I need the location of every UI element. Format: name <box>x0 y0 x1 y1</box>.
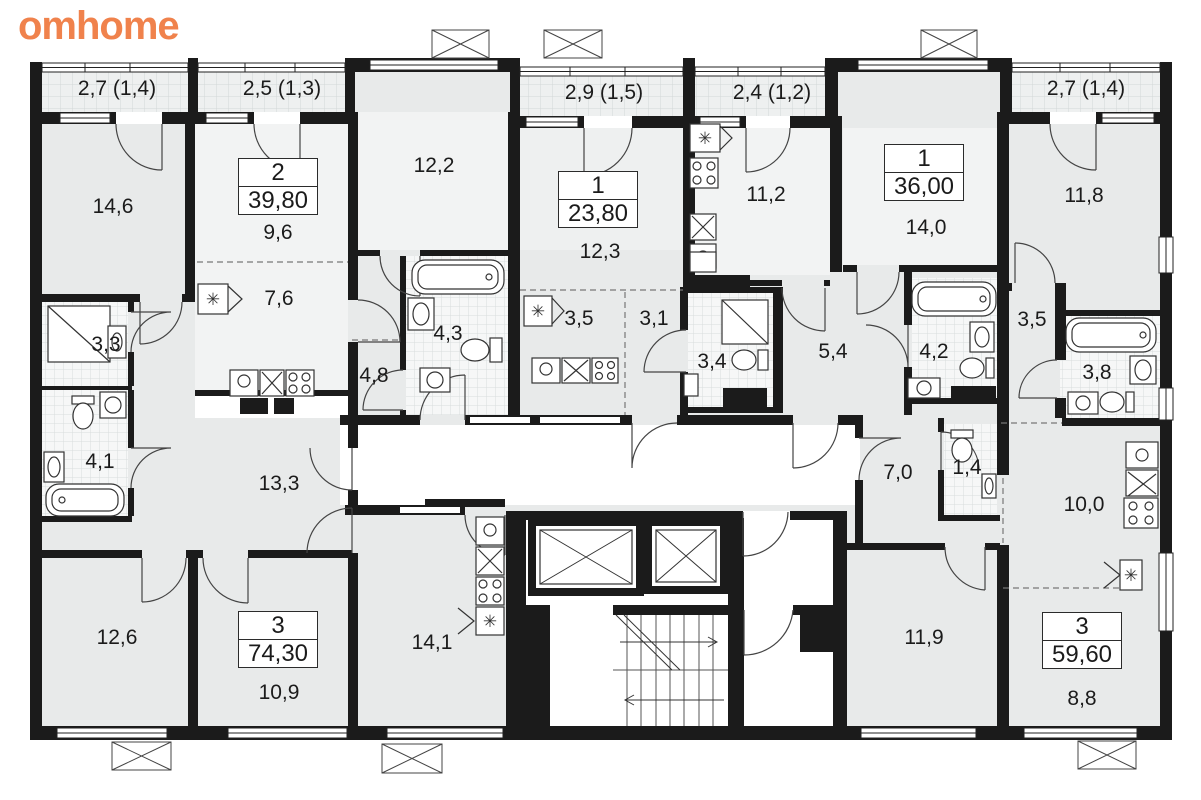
balcony-area-label: 2,4 (1,2) <box>733 81 811 105</box>
room-area-label: 3,4 <box>697 350 726 374</box>
room-area-label: 4,2 <box>919 340 948 364</box>
room-area-label: 14,1 <box>412 631 453 655</box>
room-area-label: 4,1 <box>85 450 114 474</box>
room-area-label: 3,5 <box>1017 308 1046 332</box>
room-area-label: 3,1 <box>639 307 668 331</box>
room-area-label: 8,8 <box>1067 687 1096 711</box>
apartment-total-area: 39,80 <box>239 187 317 214</box>
room-area-label: 4,8 <box>359 364 388 388</box>
fridge-icon: ✳ <box>698 129 712 148</box>
room-area-label: 11,2 <box>746 183 785 207</box>
apartment-rooms-count: 3 <box>239 612 317 640</box>
room-area-label: 5,4 <box>818 340 847 364</box>
room-area-label: 3,5 <box>564 307 593 331</box>
apartment-total-area: 74,30 <box>239 640 317 667</box>
room-area-label: 4,3 <box>433 322 462 346</box>
room-area-label: 12,6 <box>97 626 138 650</box>
fridge-icon: ✳ <box>1124 566 1138 585</box>
apartment-info-box: 1 36,00 <box>884 144 964 201</box>
fridge-icon: ✳ <box>483 612 497 631</box>
room-area-label: 14,0 <box>906 216 947 240</box>
room-area-label: 12,2 <box>414 154 455 178</box>
balcony-area-label: 2,7 (1,4) <box>1047 77 1125 101</box>
floorplan-page: omhome <box>0 0 1201 800</box>
room-area-label: 9,6 <box>263 221 292 245</box>
room-area-label: 10,9 <box>259 681 300 705</box>
apartment-total-area: 23,80 <box>559 200 637 227</box>
fridge-icon: ✳ <box>531 302 545 321</box>
room-area-label: 11,8 <box>1064 184 1103 208</box>
balcony-area-label: 2,5 (1,3) <box>243 77 321 101</box>
apartment-rooms-count: 3 <box>1043 613 1121 641</box>
apartment-info-box: 2 39,80 <box>238 158 318 215</box>
apartment-info-box: 3 74,30 <box>238 611 318 668</box>
fridge-icon: ✳ <box>206 290 220 309</box>
room-area-label: 14,6 <box>93 195 134 219</box>
room-area-label: 3,3 <box>91 333 120 357</box>
apartment-rooms-count: 1 <box>885 145 963 173</box>
balcony-area-label: 2,9 (1,5) <box>565 81 643 105</box>
room-area-label: 3,8 <box>1082 361 1111 385</box>
room-area-label: 1,4 <box>952 456 981 480</box>
elevator-shafts <box>528 518 728 596</box>
balcony-area-label: 2,7 (1,4) <box>78 77 156 101</box>
room-area-label: 7,6 <box>264 287 293 311</box>
floorplan-drawing: ✳ ✳ ✳ ✳ ✳ <box>0 0 1201 800</box>
apartment-total-area: 36,00 <box>885 173 963 200</box>
apartment-rooms-count: 1 <box>559 172 637 200</box>
room-area-label: 7,0 <box>883 461 912 485</box>
apartment-total-area: 59,60 <box>1043 641 1121 668</box>
apartment-info-box: 1 23,80 <box>558 171 638 228</box>
room-area-label: 11,9 <box>904 626 943 650</box>
room-area-label: 12,3 <box>580 240 621 264</box>
room-area-label: 13,3 <box>259 472 300 496</box>
apartment-rooms-count: 2 <box>239 159 317 187</box>
apartment-info-box: 3 59,60 <box>1042 612 1122 669</box>
room-area-label: 10,0 <box>1064 493 1105 517</box>
